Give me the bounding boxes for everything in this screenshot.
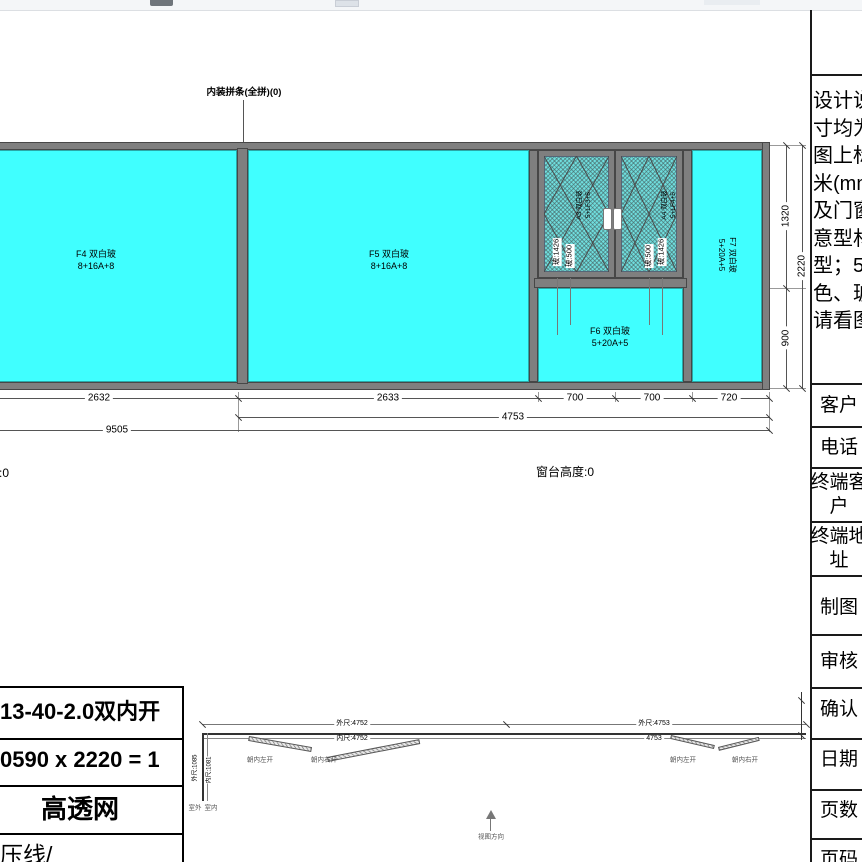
glass-dim-leader bbox=[649, 278, 650, 325]
drawing-sheet: 内装拼条(全拼)(0) F4 双白玻 8+16A+8 F5 双白玻 8+16A+… bbox=[0, 0, 862, 862]
top-bar bbox=[0, 0, 862, 11]
design-notes-line: 色、玻 bbox=[813, 281, 862, 309]
toolbar-button-dark[interactable] bbox=[150, 0, 173, 6]
dim-2632: 2632 bbox=[85, 393, 113, 404]
dim-700-right: 700 bbox=[641, 393, 664, 404]
panel-f7-spec: 5+20A+5 bbox=[716, 237, 727, 273]
plan-side-wall-outer bbox=[202, 733, 204, 801]
door-left-jamb bbox=[529, 150, 538, 382]
sash-right-spec: 5+LF4+5 bbox=[669, 190, 678, 219]
plan-wall-inner bbox=[202, 738, 806, 739]
sidebar-row-line bbox=[810, 467, 862, 469]
order-table-line bbox=[0, 738, 184, 740]
sash-left-name: A3 双白玻 bbox=[575, 190, 584, 219]
sill-height-label-right: 窗台高度:0 bbox=[536, 466, 594, 480]
plan-side-outer-dim: 外尺:1085 bbox=[193, 754, 200, 781]
plan-leaf-label-left: 朝内左开 bbox=[247, 756, 273, 763]
dim-9505: 9505 bbox=[103, 425, 131, 436]
sidebar-row-line bbox=[810, 521, 862, 523]
order-bead-note: 压线/ bbox=[0, 836, 52, 862]
handle-left[interactable] bbox=[603, 208, 612, 230]
dim-1320: 1320 bbox=[781, 202, 792, 230]
panel-f6-label: F6 双白玻 bbox=[590, 325, 630, 337]
field-reviewer: 审核 bbox=[810, 650, 862, 674]
plan-leaf-label-right: 朝内右开 bbox=[732, 756, 758, 763]
dim-2220: 2220 bbox=[797, 252, 808, 280]
plan-dim-line bbox=[202, 724, 806, 725]
compass-stem bbox=[490, 819, 491, 831]
panel-f4-spec: 8+16A+8 bbox=[78, 260, 115, 272]
window-frame-right bbox=[762, 142, 770, 390]
order-table-line bbox=[0, 833, 184, 835]
dim-2633: 2633 bbox=[374, 393, 402, 404]
panel-f6-spec: 5+20A+5 bbox=[592, 337, 629, 349]
panel-f4-label: F4 双白玻 bbox=[76, 248, 116, 260]
order-series-label: 13-40-2.0双内开 bbox=[0, 694, 160, 726]
panel-f7-label: F7 双白玻 5+20A+5 bbox=[716, 237, 738, 273]
order-table-line bbox=[0, 785, 184, 787]
plan-outer-dim-right: 外尺:4753 bbox=[636, 720, 672, 728]
sidebar-row-line bbox=[810, 838, 862, 840]
design-notes-line: 寸均为 bbox=[813, 116, 862, 144]
compass-arrow-icon bbox=[486, 810, 496, 819]
design-notes-line: 设计说 bbox=[813, 88, 862, 116]
sidebar-row-line bbox=[810, 789, 862, 791]
door-right-jamb bbox=[683, 150, 692, 382]
field-customer: 客户 bbox=[810, 394, 862, 418]
design-notes-line: 及门窗 bbox=[813, 198, 862, 226]
sash-left-glass-height: 玻:1426 bbox=[553, 238, 562, 266]
design-notes: 设计说 寸均为 图上标 米(mm 及门窗 意型材 型；5 色、玻 请看图 bbox=[813, 88, 862, 336]
sash-right-spec-label: A4 双白玻 5+LF4+5 bbox=[660, 190, 678, 219]
dim-700-left: 700 bbox=[564, 393, 587, 404]
sidebar-row-line bbox=[810, 74, 862, 76]
design-notes-line: 米(mm bbox=[813, 171, 862, 199]
plan-side-inner-dim: 内尺:1081 bbox=[207, 756, 214, 783]
window-frame-top bbox=[0, 142, 770, 150]
sash-right-glass-width: 玻:500 bbox=[645, 244, 654, 268]
toolbar-button-light[interactable] bbox=[335, 0, 359, 7]
field-end-customer: 终端客户 bbox=[810, 471, 862, 519]
plan-outer-dim-left: 外尺:4752 bbox=[334, 720, 370, 728]
dim-720: 720 bbox=[718, 393, 741, 404]
joint-label: 内装拼条(全拼)(0) bbox=[207, 87, 282, 99]
plan-wall-outer bbox=[202, 733, 806, 735]
plan-leaf-label-left: 朝内左开 bbox=[670, 756, 696, 763]
design-notes-line: 意型材 bbox=[813, 226, 862, 254]
field-end-address: 终端地址 bbox=[810, 525, 862, 573]
dim-4753: 4753 bbox=[499, 412, 527, 423]
sash-left-glass-width: 玻:500 bbox=[566, 244, 575, 268]
field-page-count: 页数 bbox=[810, 799, 862, 823]
field-page-number: 页码 bbox=[810, 848, 862, 862]
sidebar-row-line bbox=[810, 426, 862, 428]
panel-f5-label: F5 双白玻 bbox=[369, 248, 409, 260]
plan-inner-dim-left: 内尺:4752 bbox=[334, 735, 370, 743]
plan-inner-dim-right: 4753 bbox=[644, 735, 664, 743]
sidebar-row-line bbox=[810, 634, 862, 636]
panel-f7-name: F7 双白玻 bbox=[727, 237, 738, 273]
joint-mullion bbox=[237, 148, 248, 384]
sash-right-name: A4 双白玻 bbox=[660, 190, 669, 219]
field-phone: 电话 bbox=[810, 436, 862, 460]
sash-left-spec-label: A3 双白玻 5+LF3+5 bbox=[575, 190, 593, 219]
design-notes-line: 图上标 bbox=[813, 143, 862, 171]
sash-right-glass-height: 玻:1426 bbox=[658, 238, 667, 266]
sidebar-row-line bbox=[810, 575, 862, 577]
joint-leader-line bbox=[243, 100, 244, 142]
glass-dim-leader bbox=[557, 278, 558, 335]
sidebar-row-line bbox=[810, 383, 862, 385]
panel-f4-glass bbox=[0, 150, 237, 382]
plan-outside-label: 室外 bbox=[189, 804, 202, 811]
sill-height-label-left: 窗台高度:0 bbox=[0, 467, 9, 481]
field-drafter: 制图 bbox=[810, 596, 862, 620]
sidebar-row-line bbox=[810, 687, 862, 689]
design-notes-line: 型；5 bbox=[813, 253, 862, 281]
handle-right[interactable] bbox=[613, 208, 622, 230]
glass-dim-leader bbox=[662, 278, 663, 335]
plan-leaf-label-right: 朝内右开 bbox=[311, 756, 337, 763]
order-screen-type: 高透网 bbox=[41, 795, 119, 825]
sidebar-row-line bbox=[810, 738, 862, 740]
window-frame-bottom bbox=[0, 382, 770, 390]
dim-line-1320-900 bbox=[786, 145, 787, 388]
dim-900: 900 bbox=[781, 327, 792, 350]
design-notes-line: 请看图 bbox=[813, 308, 862, 336]
field-confirm: 确认 bbox=[810, 698, 862, 722]
order-table-right-border bbox=[182, 686, 184, 862]
panel-f5-spec: 8+16A+8 bbox=[371, 260, 408, 272]
field-date: 日期 bbox=[810, 748, 862, 772]
sash-left-spec: 5+LF3+5 bbox=[584, 190, 593, 219]
plan-inside-label: 室内 bbox=[205, 804, 218, 811]
order-table-line bbox=[0, 686, 184, 688]
view-direction-label: 视图方向 bbox=[478, 833, 504, 840]
glass-dim-leader bbox=[570, 278, 571, 325]
order-size-count: 0590 x 2220 = 1 bbox=[0, 747, 160, 773]
toolbar-button-wide[interactable] bbox=[704, 0, 760, 5]
